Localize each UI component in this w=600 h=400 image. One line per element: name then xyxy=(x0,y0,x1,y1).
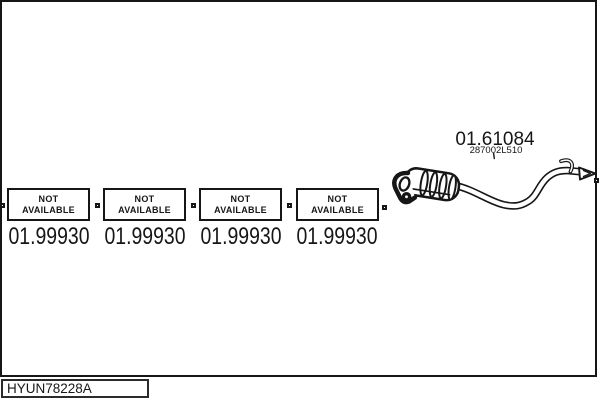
muffler-drawing xyxy=(0,0,600,400)
diagram-code-label: HYUN78228A xyxy=(7,382,92,396)
exhaust-pipe-outline xyxy=(455,171,583,206)
flange-bolt-center xyxy=(405,195,408,198)
tailpipe-tip-icon xyxy=(579,168,596,180)
tick-mark xyxy=(494,154,495,159)
exhaust-diagram-canvas: NOT AVAILABLE NOT AVAILABLE NOT AVAILABL… xyxy=(0,0,600,400)
diagram-code-box: HYUN78228A xyxy=(1,379,149,398)
